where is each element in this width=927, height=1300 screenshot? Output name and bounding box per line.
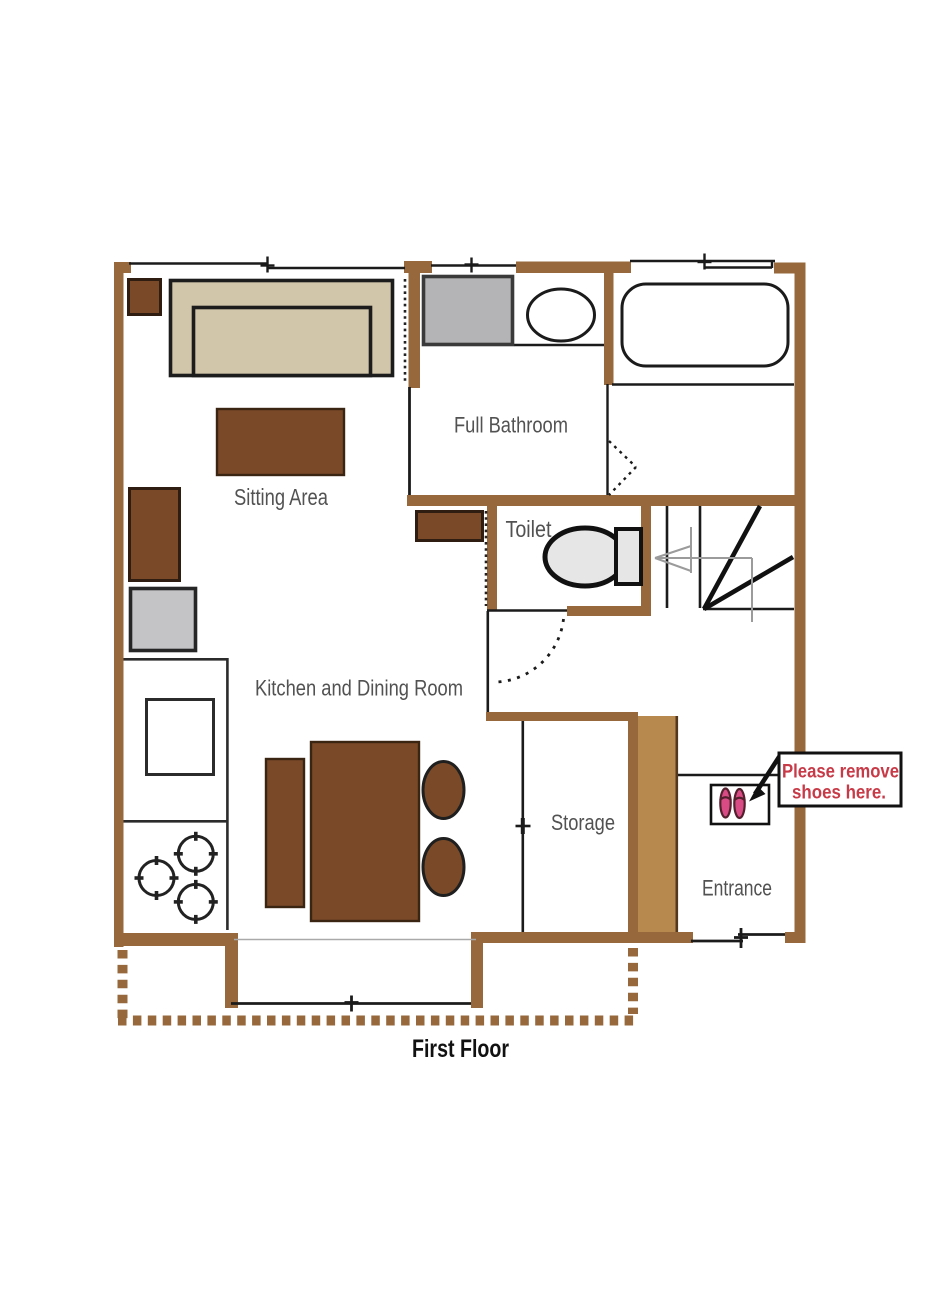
svg-text:Full Bathroom: Full Bathroom bbox=[454, 413, 568, 438]
svg-text:shoes here.: shoes here. bbox=[792, 783, 886, 804]
svg-text:Please remove: Please remove bbox=[782, 762, 899, 783]
svg-text:Entrance: Entrance bbox=[702, 876, 772, 901]
svg-text:Toilet: Toilet bbox=[506, 516, 553, 542]
svg-text:Storage: Storage bbox=[551, 810, 615, 835]
svg-text:First Floor: First Floor bbox=[412, 1035, 509, 1063]
svg-text:Kitchen and Dining Room: Kitchen and Dining Room bbox=[255, 676, 463, 701]
svg-text:Sitting Area: Sitting Area bbox=[234, 484, 328, 510]
